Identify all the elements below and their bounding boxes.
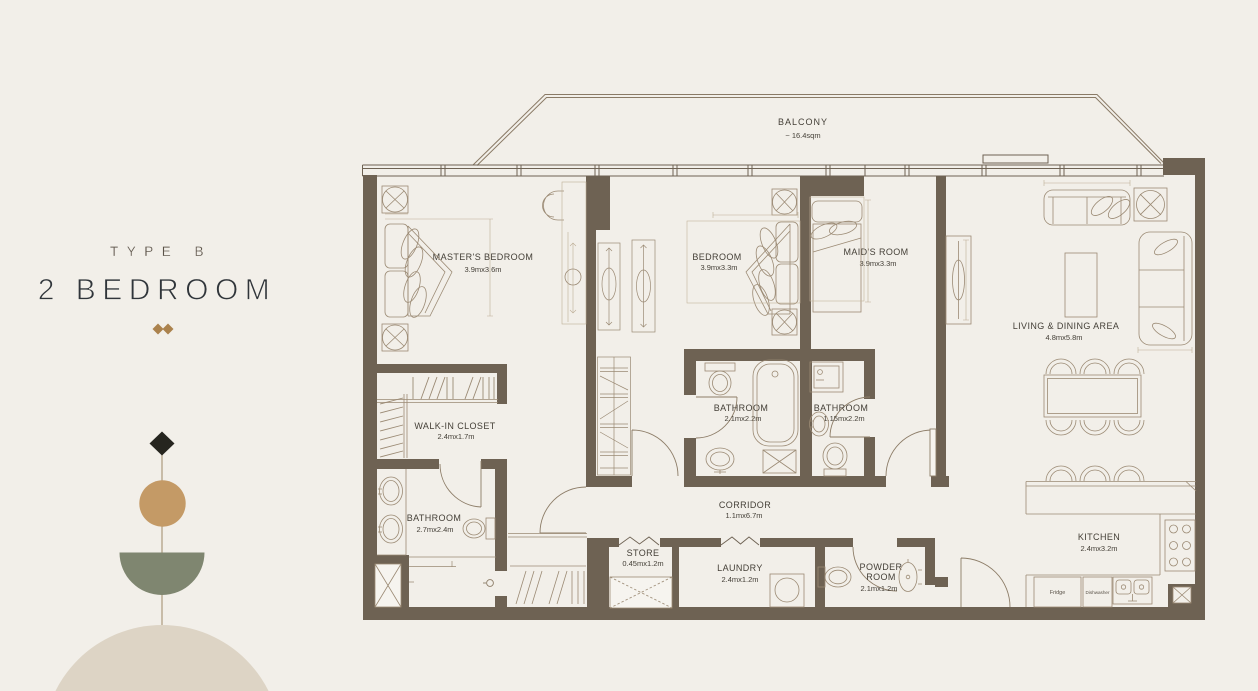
svg-text:2 BEDROOM: 2 BEDROOM [38, 274, 277, 307]
svg-text:MAID'S ROOM: MAID'S ROOM [843, 247, 908, 257]
svg-text:Dishwasher: Dishwasher [1086, 590, 1110, 595]
svg-text:BATHROOM: BATHROOM [814, 403, 869, 413]
svg-text:CORRIDOR: CORRIDOR [719, 500, 771, 510]
svg-text:STORE: STORE [627, 548, 660, 558]
svg-text:Fridge: Fridge [1050, 590, 1066, 596]
svg-text:KITCHEN: KITCHEN [1078, 532, 1120, 542]
svg-text:BATHROOM: BATHROOM [714, 403, 769, 413]
svg-text:POWDER: POWDER [860, 562, 903, 572]
svg-text:TYPE B: TYPE B [110, 244, 212, 259]
svg-text:~ 16.4sqm: ~ 16.4sqm [785, 131, 820, 140]
svg-text:LIVING & DINING AREA: LIVING & DINING AREA [1013, 321, 1120, 331]
svg-text:ROOM: ROOM [866, 572, 896, 582]
svg-text:2.7mx2.4m: 2.7mx2.4m [416, 525, 453, 534]
svg-text:MASTER'S BEDROOM: MASTER'S BEDROOM [433, 252, 534, 262]
svg-text:BALCONY: BALCONY [778, 117, 828, 127]
svg-text:BATHROOM: BATHROOM [407, 513, 462, 523]
svg-text:2.1mx1.2m: 2.1mx1.2m [860, 584, 897, 593]
svg-text:LAUNDRY: LAUNDRY [717, 563, 763, 573]
svg-text:2.4mx1.2m: 2.4mx1.2m [721, 575, 758, 584]
svg-text:WALK-IN CLOSET: WALK-IN CLOSET [414, 421, 495, 431]
svg-text:4.8mx5.8m: 4.8mx5.8m [1045, 333, 1082, 342]
svg-text:0.45mx1.2m: 0.45mx1.2m [622, 559, 663, 568]
svg-text:2.4mx1.7m: 2.4mx1.7m [437, 432, 474, 441]
svg-text:3.9mx3.3m: 3.9mx3.3m [700, 263, 737, 272]
svg-text:3.9mx3.3m: 3.9mx3.3m [859, 259, 896, 268]
svg-text:2.1mx2.2m: 2.1mx2.2m [724, 414, 761, 423]
svg-text:1.1mx6.7m: 1.1mx6.7m [725, 511, 762, 520]
svg-text:3.9mx3.6m: 3.9mx3.6m [464, 265, 501, 274]
svg-text:2.4mx3.2m: 2.4mx3.2m [1080, 544, 1117, 553]
svg-text:BEDROOM: BEDROOM [692, 252, 741, 262]
svg-text:1.15mx2.2m: 1.15mx2.2m [823, 414, 864, 423]
